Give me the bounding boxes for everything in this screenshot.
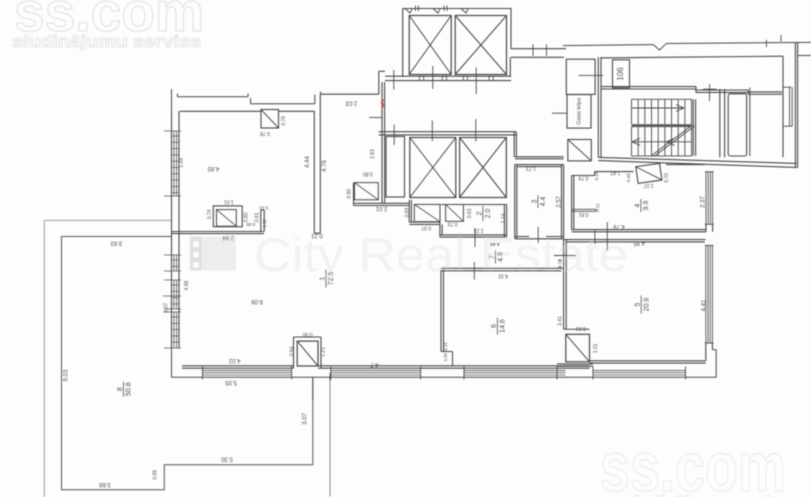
svg-text:4.4: 4.4 xyxy=(540,197,547,207)
svg-text:Gaiss telpa: Gaiss telpa xyxy=(576,98,582,125)
svg-text:1.18: 1.18 xyxy=(557,259,562,268)
svg-text:1: 1 xyxy=(319,276,326,280)
svg-text:0.89: 0.89 xyxy=(153,470,159,480)
svg-text:1.01: 1.01 xyxy=(224,198,234,204)
svg-text:9.9: 9.9 xyxy=(643,201,650,211)
svg-text:6: 6 xyxy=(491,324,498,328)
svg-text:4.76: 4.76 xyxy=(322,160,328,172)
svg-text:0.61: 0.61 xyxy=(254,212,260,222)
svg-text:50.8: 50.8 xyxy=(126,382,133,396)
svg-text:3.07: 3.07 xyxy=(303,413,309,425)
svg-text:0.65: 0.65 xyxy=(246,222,255,227)
svg-text:0.76: 0.76 xyxy=(281,116,287,126)
svg-text:0.90: 0.90 xyxy=(346,189,352,199)
svg-text:4.41: 4.41 xyxy=(701,299,707,311)
svg-text:7: 7 xyxy=(489,255,496,259)
svg-text:1.14: 1.14 xyxy=(501,213,507,223)
svg-text:4.95: 4.95 xyxy=(633,239,645,245)
svg-text:2.23: 2.23 xyxy=(474,227,484,233)
svg-text:0.69: 0.69 xyxy=(404,207,410,217)
svg-text:0.79: 0.79 xyxy=(578,174,588,180)
svg-text:1.73: 1.73 xyxy=(526,165,536,171)
svg-text:2.03: 2.03 xyxy=(345,99,357,105)
svg-text:1.21: 1.21 xyxy=(321,347,327,357)
svg-text:2.57: 2.57 xyxy=(556,195,562,207)
svg-text:4.32: 4.32 xyxy=(498,273,508,279)
svg-text:0.94: 0.94 xyxy=(290,346,296,356)
svg-text:0.97: 0.97 xyxy=(421,224,431,230)
svg-text:0.80: 0.80 xyxy=(244,212,250,222)
svg-text:1.01: 1.01 xyxy=(593,343,599,353)
svg-text:0.21: 0.21 xyxy=(310,232,322,238)
svg-text:4.44: 4.44 xyxy=(490,240,500,246)
svg-text:0.48: 0.48 xyxy=(626,173,631,182)
svg-text:0.11: 0.11 xyxy=(595,203,600,212)
svg-text:9.09: 9.09 xyxy=(251,298,263,304)
svg-text:2.37: 2.37 xyxy=(700,196,706,208)
svg-text:4.44: 4.44 xyxy=(305,156,311,168)
svg-text:4.7: 4.7 xyxy=(370,361,379,367)
svg-text:4.85: 4.85 xyxy=(207,165,219,171)
svg-text:20.9: 20.9 xyxy=(643,298,650,312)
svg-text:4.9: 4.9 xyxy=(498,252,505,262)
svg-text:2.83: 2.83 xyxy=(370,149,376,159)
svg-text:5.30: 5.30 xyxy=(221,455,233,461)
svg-text:3.41: 3.41 xyxy=(557,316,563,326)
svg-text:4.79: 4.79 xyxy=(613,223,625,229)
svg-text:sludinājumu serviss: sludinājumu serviss xyxy=(625,492,790,497)
svg-text:0.78: 0.78 xyxy=(260,130,270,136)
svg-text:sludinājumu serviss: sludinājumu serviss xyxy=(12,32,201,51)
svg-text:1.43: 1.43 xyxy=(610,169,620,175)
svg-text:0.74: 0.74 xyxy=(207,209,213,219)
svg-text:5: 5 xyxy=(635,302,642,306)
svg-text:1.07: 1.07 xyxy=(644,182,654,188)
svg-text:0.80: 0.80 xyxy=(443,352,448,361)
svg-text:0.81: 0.81 xyxy=(578,211,588,217)
svg-text:0.63: 0.63 xyxy=(467,208,473,218)
svg-text:0.70: 0.70 xyxy=(664,173,670,183)
svg-text:1.18: 1.18 xyxy=(178,158,184,168)
svg-text:3: 3 xyxy=(531,199,538,203)
svg-text:2.0: 2.0 xyxy=(485,209,492,219)
svg-text:4.02: 4.02 xyxy=(228,357,240,363)
svg-text:3.68: 3.68 xyxy=(99,481,111,487)
svg-text:3.93: 3.93 xyxy=(110,239,122,245)
svg-text:8: 8 xyxy=(117,387,124,391)
svg-text:0.80: 0.80 xyxy=(363,171,373,177)
svg-text:0.73: 0.73 xyxy=(448,220,458,226)
svg-text:0.93: 0.93 xyxy=(576,325,586,331)
svg-text:1.82: 1.82 xyxy=(262,219,267,228)
svg-text:0.15: 0.15 xyxy=(443,342,448,351)
svg-text:72.5: 72.5 xyxy=(328,272,335,286)
svg-text:9.03: 9.03 xyxy=(64,369,70,381)
svg-text:106: 106 xyxy=(616,67,625,81)
svg-text:2.01: 2.01 xyxy=(375,205,387,211)
svg-text:5.05: 5.05 xyxy=(225,379,237,385)
svg-text:5.07: 5.07 xyxy=(164,303,170,313)
svg-text:14.6: 14.6 xyxy=(500,319,507,333)
svg-text:2.84: 2.84 xyxy=(222,234,234,240)
svg-text:0.10: 0.10 xyxy=(259,206,268,211)
svg-text:4: 4 xyxy=(634,203,641,207)
svg-text:4.68: 4.68 xyxy=(184,281,190,291)
svg-text:ss.com: ss.com xyxy=(600,428,786,497)
svg-text:0.10: 0.10 xyxy=(594,171,599,180)
svg-text:0.90: 0.90 xyxy=(303,331,313,337)
svg-text:2: 2 xyxy=(476,211,483,215)
